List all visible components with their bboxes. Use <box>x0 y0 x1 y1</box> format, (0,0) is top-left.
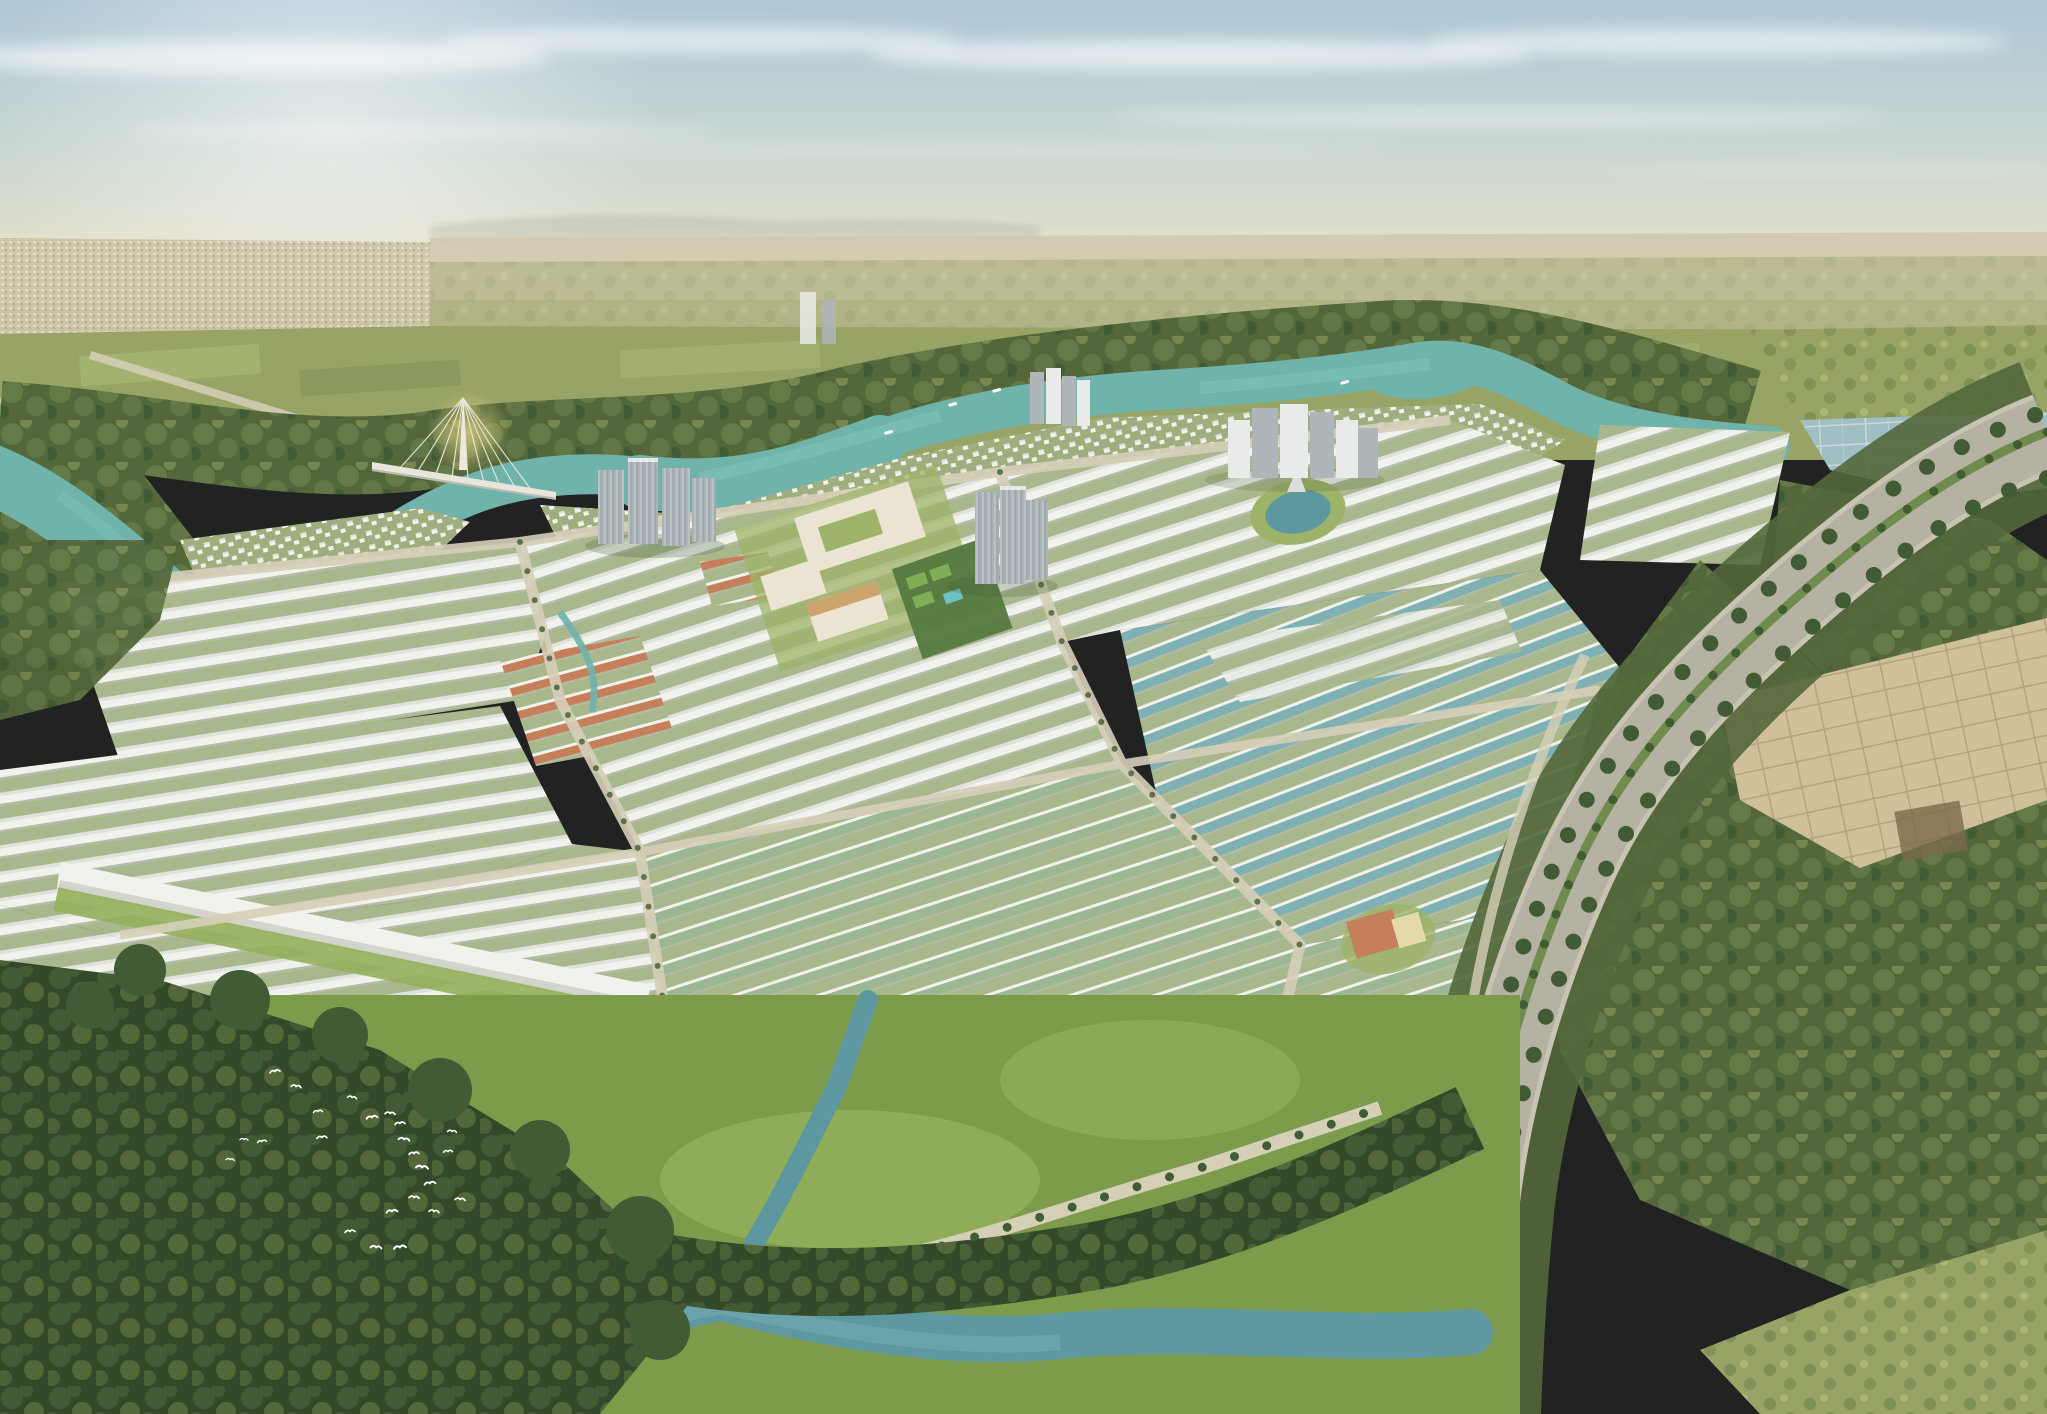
render-canvas <box>0 0 2047 1414</box>
meadow-patch <box>1000 1020 1300 1140</box>
township-aerial-render <box>0 0 2047 1414</box>
bridge-glow <box>426 390 510 474</box>
distant-town <box>0 238 430 334</box>
